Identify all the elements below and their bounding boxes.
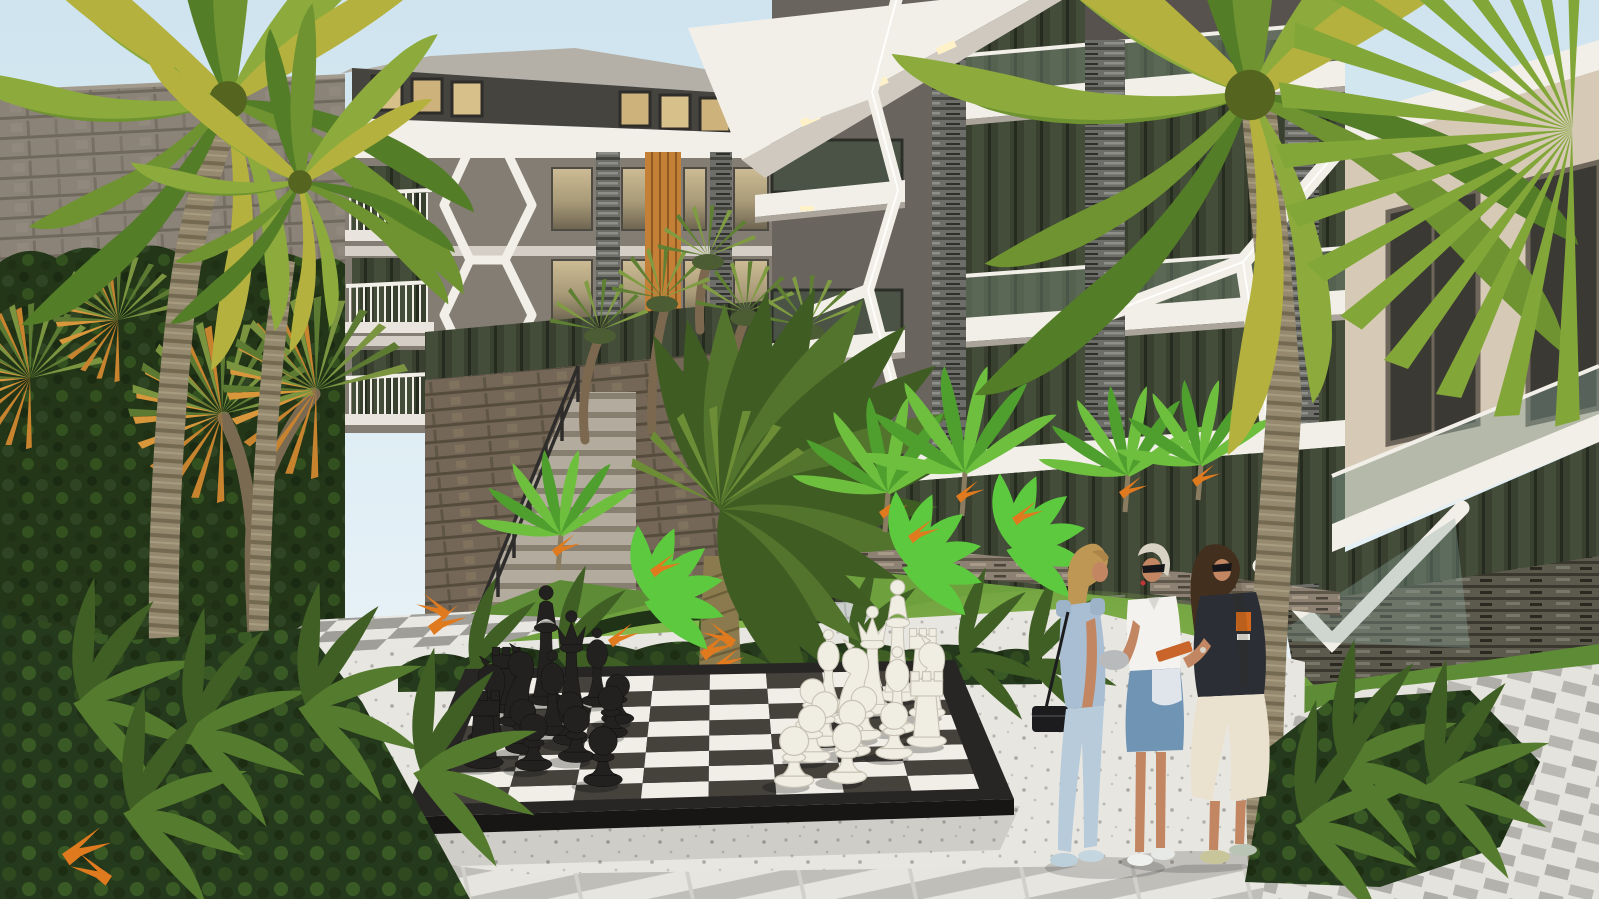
chessboard-square (709, 734, 772, 751)
chessboard-square (710, 674, 768, 690)
skirt-white-panel (1152, 668, 1182, 705)
chessboard-square (647, 720, 709, 737)
chessboard-square (709, 764, 775, 781)
chessboard-square (641, 781, 709, 798)
black-handbag (1032, 706, 1068, 732)
recessed-light (800, 206, 814, 211)
sneaker (1200, 850, 1230, 864)
apartment-window (684, 168, 706, 230)
sneaker (1050, 853, 1078, 867)
leg (1156, 752, 1166, 848)
face (1092, 562, 1108, 582)
courtyard-render (0, 0, 1599, 899)
bracelet (1200, 647, 1206, 653)
chessboard-square (506, 785, 577, 803)
apartment-window (552, 168, 592, 230)
chessboard-square (644, 751, 709, 768)
yucca-core (584, 328, 616, 344)
chessboard-square (903, 759, 973, 776)
attic-window (660, 95, 690, 129)
palm-crown-core (1225, 70, 1275, 120)
chessboard-square (709, 704, 769, 721)
balcony-slab (344, 414, 434, 425)
shoulder-cap (1090, 598, 1105, 615)
chessboard-square (709, 749, 774, 766)
attic-window (620, 92, 650, 126)
silver-clutch (1099, 650, 1129, 670)
sneaker (1151, 848, 1175, 860)
sneaker (1229, 844, 1257, 856)
chessboard-square (643, 766, 709, 783)
chessboard-square (646, 736, 710, 753)
yucca-core (692, 254, 724, 270)
chessboard-square (710, 689, 769, 705)
chessboard-square (709, 719, 771, 736)
yucca-core (646, 296, 678, 312)
earring (1141, 581, 1146, 586)
sneaker (1127, 854, 1153, 866)
chessboard-square (651, 690, 710, 707)
palm-crown-core (288, 170, 312, 194)
chessboard-square (652, 675, 710, 692)
chessboard-square (649, 705, 710, 722)
sneaker (1078, 850, 1104, 862)
render-viewport (0, 0, 1599, 899)
chessboard-square (907, 774, 979, 791)
attic-window (452, 82, 482, 116)
